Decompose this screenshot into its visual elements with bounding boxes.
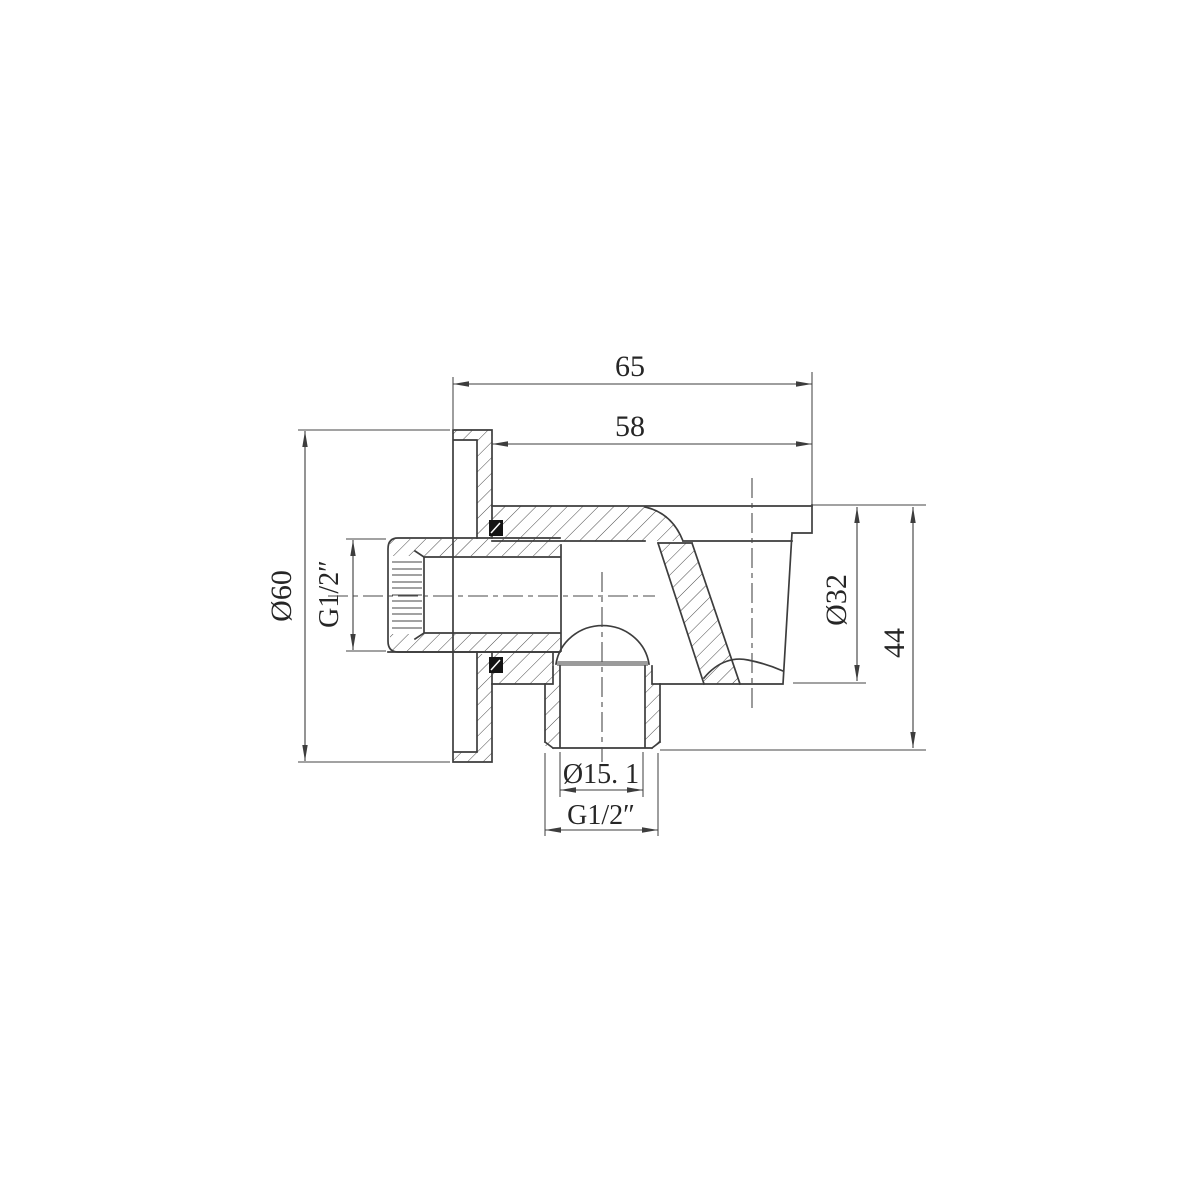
outlet-neck-hatch-left — [553, 666, 560, 684]
dim-label-44: 44 — [878, 628, 911, 658]
drawing-page: 65 58 Ø60 G1/2″ Ø32 44 — [0, 0, 1200, 1200]
inlet-thread-profile — [392, 562, 422, 628]
outlet-wall-hatch-left — [545, 684, 560, 746]
outlet-wall-hatch-right — [645, 684, 660, 746]
body-top-band-hatch — [492, 506, 683, 541]
flange-rim-hatch-bottom — [453, 752, 477, 762]
inlet-wall-hatch-bottom — [390, 634, 560, 651]
dim-label-outlet-bore: Ø15. 1 — [563, 759, 639, 790]
inlet-connector — [388, 538, 561, 652]
dim-label-cup-diameter: Ø32 — [820, 574, 853, 626]
dim-label-flange-diameter: Ø60 — [265, 570, 298, 622]
dim-body-depth-58: 58 — [492, 410, 812, 450]
dimensions: 65 58 Ø60 G1/2″ Ø32 44 — [265, 350, 926, 836]
dim-outlet-bore-151: Ø15. 1 — [560, 752, 643, 797]
dim-inlet-thread-g12: G1/2″ — [314, 539, 386, 651]
dim-label-58: 58 — [615, 410, 645, 443]
dim-label-inlet-thread: G1/2″ — [314, 560, 345, 628]
dim-label-outlet-thread: G1/2″ — [567, 800, 635, 831]
outlet-neck-hatch-right — [645, 666, 652, 684]
valve-body — [388, 506, 812, 684]
dim-label-65: 65 — [615, 350, 645, 383]
flange-rim-hatch-top — [453, 430, 477, 440]
technical-drawing-canvas: 65 58 Ø60 G1/2″ Ø32 44 — [0, 0, 1200, 1200]
extension-lines — [346, 539, 386, 651]
